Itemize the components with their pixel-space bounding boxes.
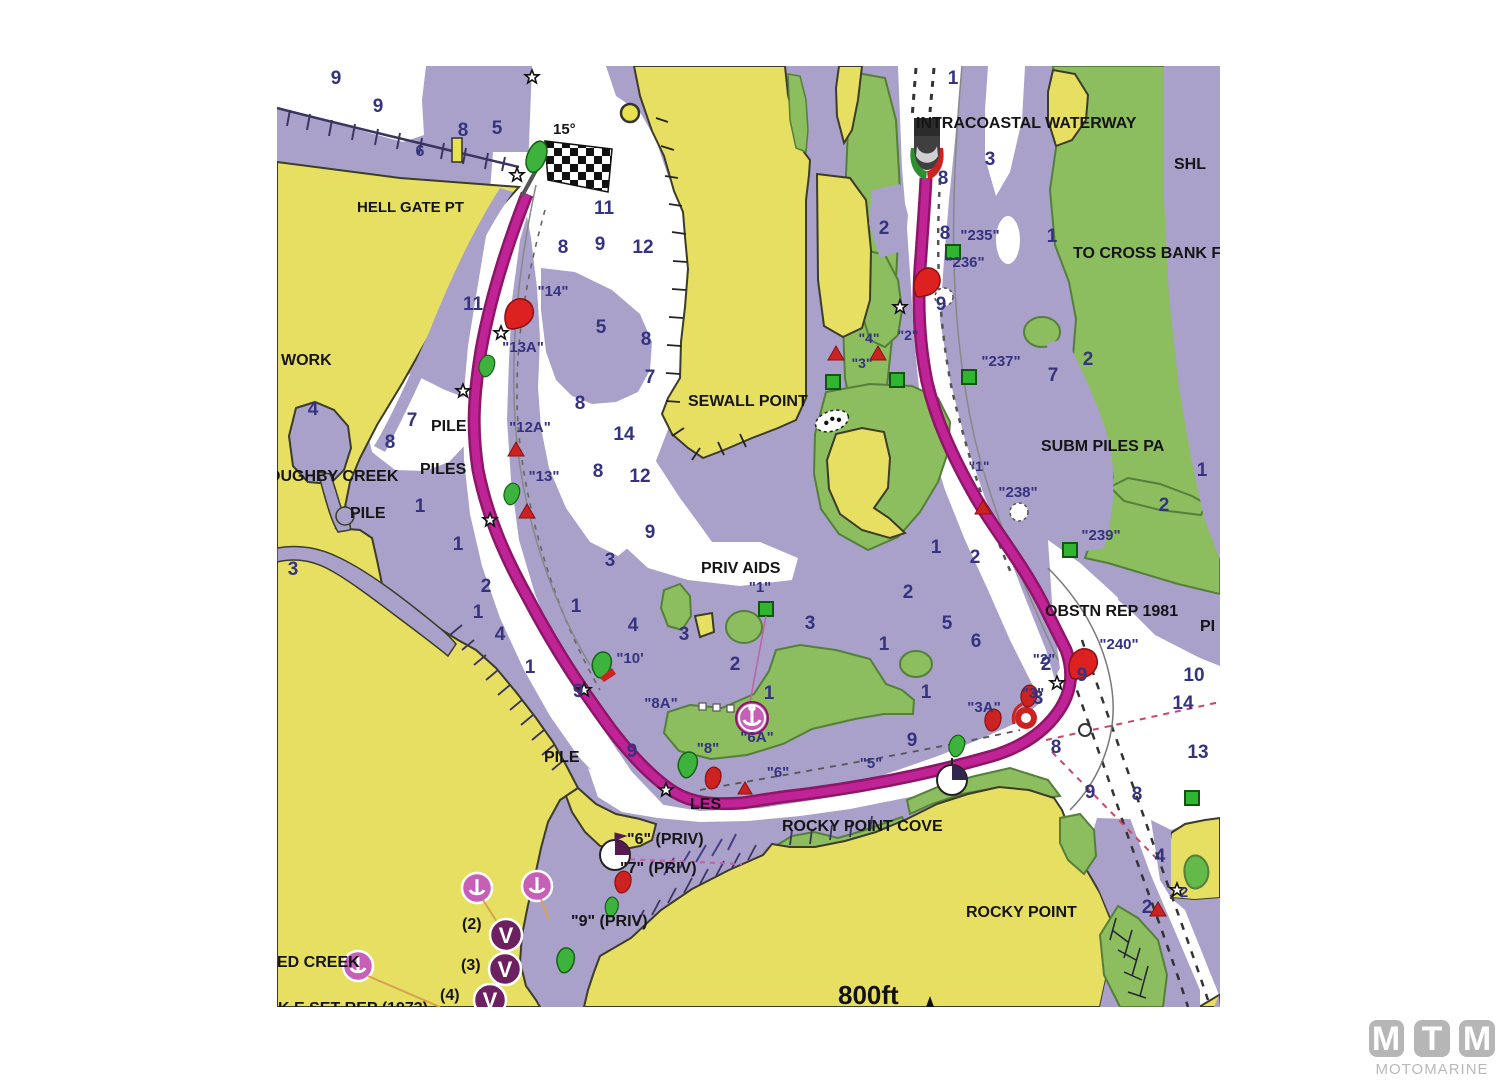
svg-text:9: 9 (331, 68, 342, 89)
svg-text:"5": "5" (860, 755, 883, 772)
svg-text:"13A": "13A" (502, 339, 544, 356)
svg-text:8: 8 (1051, 737, 1062, 758)
svg-text:SUBM PILES PA: SUBM PILES PA (1041, 438, 1165, 455)
svg-text:1: 1 (879, 634, 890, 655)
svg-text:1: 1 (1047, 226, 1058, 247)
svg-text:V: V (499, 923, 514, 948)
svg-text:3: 3 (605, 550, 616, 571)
svg-text:5: 5 (492, 118, 503, 139)
svg-text:M: M (1372, 1020, 1400, 1058)
svg-text:2: 2 (970, 547, 981, 568)
svg-text:(4): (4) (440, 987, 460, 1004)
svg-text:PRIV AIDS: PRIV AIDS (701, 560, 781, 577)
svg-text:T: T (1422, 1020, 1443, 1058)
svg-text:"10': "10' (616, 650, 643, 667)
svg-text:1: 1 (931, 537, 942, 558)
svg-text:9: 9 (573, 681, 584, 702)
svg-text:7: 7 (1048, 365, 1059, 386)
svg-text:"8": "8" (697, 740, 720, 757)
svg-text:1: 1 (948, 68, 959, 89)
svg-text:14: 14 (1172, 693, 1194, 714)
svg-text:9: 9 (627, 741, 638, 762)
svg-text:6: 6 (416, 143, 425, 160)
svg-text:V: V (498, 957, 513, 982)
svg-text:1: 1 (525, 657, 536, 678)
svg-text:5: 5 (596, 317, 607, 338)
svg-text:8: 8 (938, 168, 949, 189)
svg-text:7: 7 (645, 367, 656, 388)
svg-text:9: 9 (373, 96, 384, 117)
svg-text:"4": "4" (858, 330, 879, 346)
svg-text:11: 11 (594, 198, 615, 219)
svg-text:ED CREEK: ED CREEK (277, 954, 360, 971)
svg-text:M: M (1463, 1020, 1491, 1058)
svg-text:3: 3 (288, 559, 299, 580)
svg-text:"238": "238" (998, 484, 1037, 501)
svg-text:4: 4 (308, 399, 319, 420)
svg-text:WORK: WORK (281, 352, 332, 369)
svg-text:2: 2 (481, 576, 492, 597)
svg-text:ROCKY POINT COVE: ROCKY POINT COVE (782, 818, 943, 835)
svg-text:"6A": "6A" (740, 729, 773, 746)
svg-text:1: 1 (453, 534, 464, 555)
svg-text:PILE: PILE (431, 418, 467, 435)
svg-text:"6" (PRIV): "6" (PRIV) (627, 831, 704, 848)
svg-text:9: 9 (1085, 782, 1096, 803)
svg-text:"9" (PRIV): "9" (PRIV) (571, 913, 648, 930)
svg-text:SHL: SHL (1174, 156, 1206, 173)
svg-text:15°: 15° (553, 121, 576, 138)
svg-text:"236": "236" (945, 254, 984, 271)
svg-text:"237": "237" (981, 353, 1020, 370)
svg-text:"240": "240" (1099, 636, 1138, 653)
svg-text:OUGHBY CREEK: OUGHBY CREEK (268, 468, 399, 485)
svg-text:3: 3 (679, 624, 690, 645)
svg-text:(3): (3) (461, 957, 481, 974)
svg-text:2: 2 (1180, 884, 1188, 901)
svg-text:8: 8 (575, 393, 586, 414)
svg-text:4: 4 (1155, 846, 1166, 867)
svg-text:SEWALL POINT: SEWALL POINT (688, 393, 808, 410)
svg-text:PILE: PILE (350, 505, 386, 522)
svg-text:8: 8 (458, 120, 469, 141)
svg-text:5: 5 (942, 613, 953, 634)
svg-text:11: 11 (463, 294, 484, 315)
svg-text:1: 1 (473, 602, 484, 623)
svg-text:14: 14 (613, 424, 635, 445)
svg-text:8: 8 (558, 237, 569, 258)
svg-text:"239": "239" (1081, 527, 1120, 544)
svg-text:"7" (PRIV): "7" (PRIV) (620, 860, 697, 877)
svg-text:ROCKY POINT: ROCKY POINT (966, 904, 1077, 921)
svg-text:8: 8 (385, 432, 396, 453)
svg-text:"8A": "8A" (644, 695, 677, 712)
svg-text:9: 9 (1077, 665, 1088, 686)
svg-text:2: 2 (730, 654, 741, 675)
svg-text:HELL GATE PT: HELL GATE PT (357, 199, 464, 216)
svg-text:"1": "1" (968, 458, 989, 474)
svg-text:10: 10 (1183, 665, 1204, 686)
svg-text:800ft: 800ft (838, 980, 899, 1010)
svg-text:PILE: PILE (544, 749, 580, 766)
svg-text:1: 1 (415, 496, 426, 517)
svg-text:1: 1 (764, 683, 775, 704)
svg-text:"3": "3" (1022, 685, 1045, 702)
svg-text:"12A": "12A" (509, 419, 551, 436)
svg-text:7: 7 (407, 410, 418, 431)
svg-text:OBSTN REP 1981: OBSTN REP 1981 (1045, 603, 1178, 620)
svg-text:12: 12 (632, 237, 653, 258)
svg-text:2: 2 (1142, 897, 1153, 918)
svg-text:V: V (483, 988, 498, 1013)
svg-text:9: 9 (907, 730, 918, 751)
svg-text:"2": "2" (897, 327, 918, 343)
svg-text:3: 3 (985, 149, 996, 170)
svg-text:"2": "2" (1033, 651, 1056, 668)
svg-text:K E SET REP (1973): K E SET REP (1973) (278, 1000, 428, 1017)
svg-text:PILES: PILES (420, 461, 467, 478)
svg-text:2: 2 (1083, 349, 1094, 370)
svg-text:8: 8 (641, 329, 652, 350)
svg-text:9: 9 (936, 294, 947, 315)
svg-text:6: 6 (971, 631, 982, 652)
svg-text:1: 1 (571, 596, 582, 617)
svg-text:2: 2 (903, 582, 914, 603)
svg-text:8: 8 (593, 461, 604, 482)
svg-text:"3": "3" (851, 355, 872, 371)
svg-text:MOTOMARINE: MOTOMARINE (1375, 1061, 1488, 1078)
svg-text:8: 8 (940, 223, 951, 244)
svg-text:INTRACOASTAL WATERWAY: INTRACOASTAL WATERWAY (916, 115, 1137, 132)
svg-text:9: 9 (645, 522, 656, 543)
svg-text:"13": "13" (529, 468, 560, 485)
svg-text:(2): (2) (462, 916, 482, 933)
svg-text:2: 2 (879, 218, 890, 239)
svg-text:"1": "1" (749, 579, 772, 596)
svg-text:"3A": "3A" (967, 699, 1000, 716)
svg-text:4: 4 (628, 615, 639, 636)
svg-text:1: 1 (921, 682, 932, 703)
svg-text:8: 8 (1132, 784, 1143, 805)
svg-text:13: 13 (1187, 742, 1208, 763)
svg-text:LES: LES (690, 796, 721, 813)
svg-text:1: 1 (1197, 460, 1208, 481)
svg-text:"6": "6" (767, 764, 790, 781)
svg-text:PI: PI (1200, 618, 1215, 635)
svg-text:9: 9 (595, 234, 606, 255)
svg-text:"14": "14" (538, 283, 569, 300)
svg-text:2: 2 (1159, 495, 1170, 516)
svg-text:"235": "235" (960, 227, 999, 244)
svg-text:4: 4 (495, 624, 506, 645)
svg-text:TO CROSS BANK F: TO CROSS BANK F (1073, 245, 1221, 262)
svg-text:3: 3 (805, 613, 816, 634)
svg-text:12: 12 (629, 466, 650, 487)
